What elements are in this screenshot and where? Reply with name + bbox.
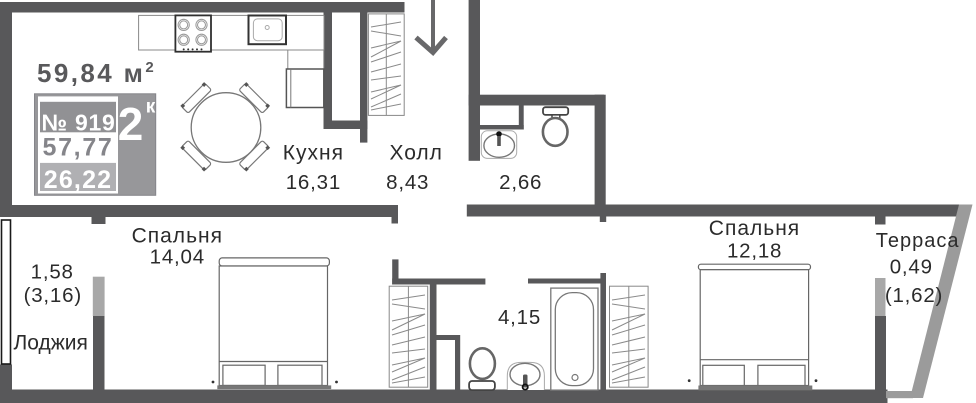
svg-text:(3,16): (3,16)	[24, 284, 82, 307]
svg-text:59,84 м2: 59,84 м2	[37, 58, 156, 88]
svg-text:57,77: 57,77	[42, 134, 113, 162]
svg-text:(1,62): (1,62)	[885, 284, 943, 307]
svg-text:4,15: 4,15	[498, 306, 541, 329]
svg-text:Кухня: Кухня	[283, 141, 344, 164]
svg-text:26,22: 26,22	[44, 166, 113, 194]
svg-text:2,66: 2,66	[499, 171, 542, 194]
svg-text:№ 919: № 919	[42, 110, 116, 136]
svg-text:к: к	[146, 97, 156, 118]
svg-text:Терраса: Терраса	[876, 230, 960, 252]
svg-text:2: 2	[118, 98, 144, 150]
svg-text:1,58: 1,58	[31, 261, 74, 284]
svg-text:Спальня: Спальня	[709, 217, 800, 240]
svg-text:0,49: 0,49	[890, 255, 933, 278]
svg-text:14,04: 14,04	[150, 246, 205, 269]
svg-text:Холл: Холл	[389, 142, 443, 165]
svg-text:12,18: 12,18	[727, 239, 782, 262]
svg-text:Спальня: Спальня	[132, 225, 223, 248]
svg-text:Лоджия: Лоджия	[14, 332, 88, 355]
svg-text:8,43: 8,43	[386, 171, 429, 194]
svg-text:16,31: 16,31	[286, 171, 341, 194]
